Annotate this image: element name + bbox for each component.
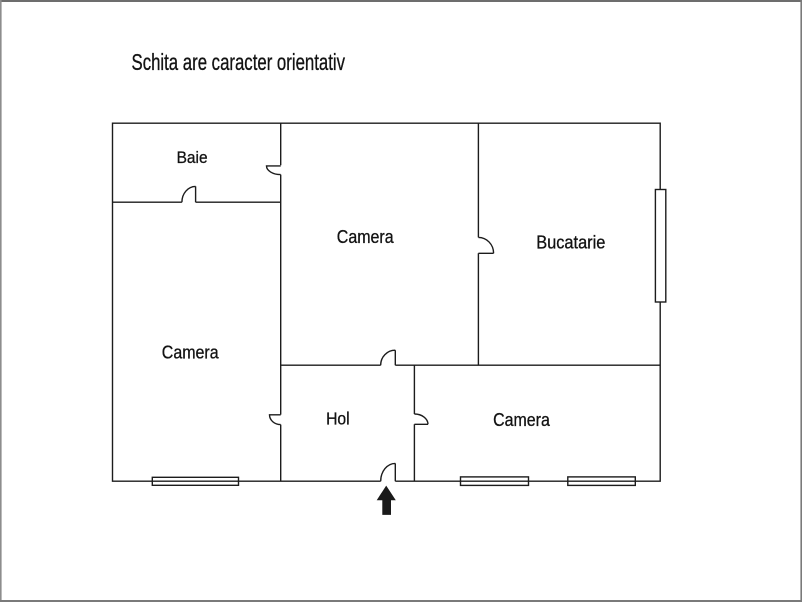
svg-text:Baie: Baie	[177, 149, 208, 167]
svg-text:Camera: Camera	[162, 342, 219, 363]
svg-text:Hol: Hol	[326, 409, 350, 429]
svg-text:Bucatarie: Bucatarie	[536, 232, 605, 253]
svg-text:Camera: Camera	[493, 409, 550, 430]
svg-text:Camera: Camera	[337, 226, 394, 247]
svg-text:Schita are caracter orientativ: Schita are caracter orientativ	[132, 49, 346, 75]
